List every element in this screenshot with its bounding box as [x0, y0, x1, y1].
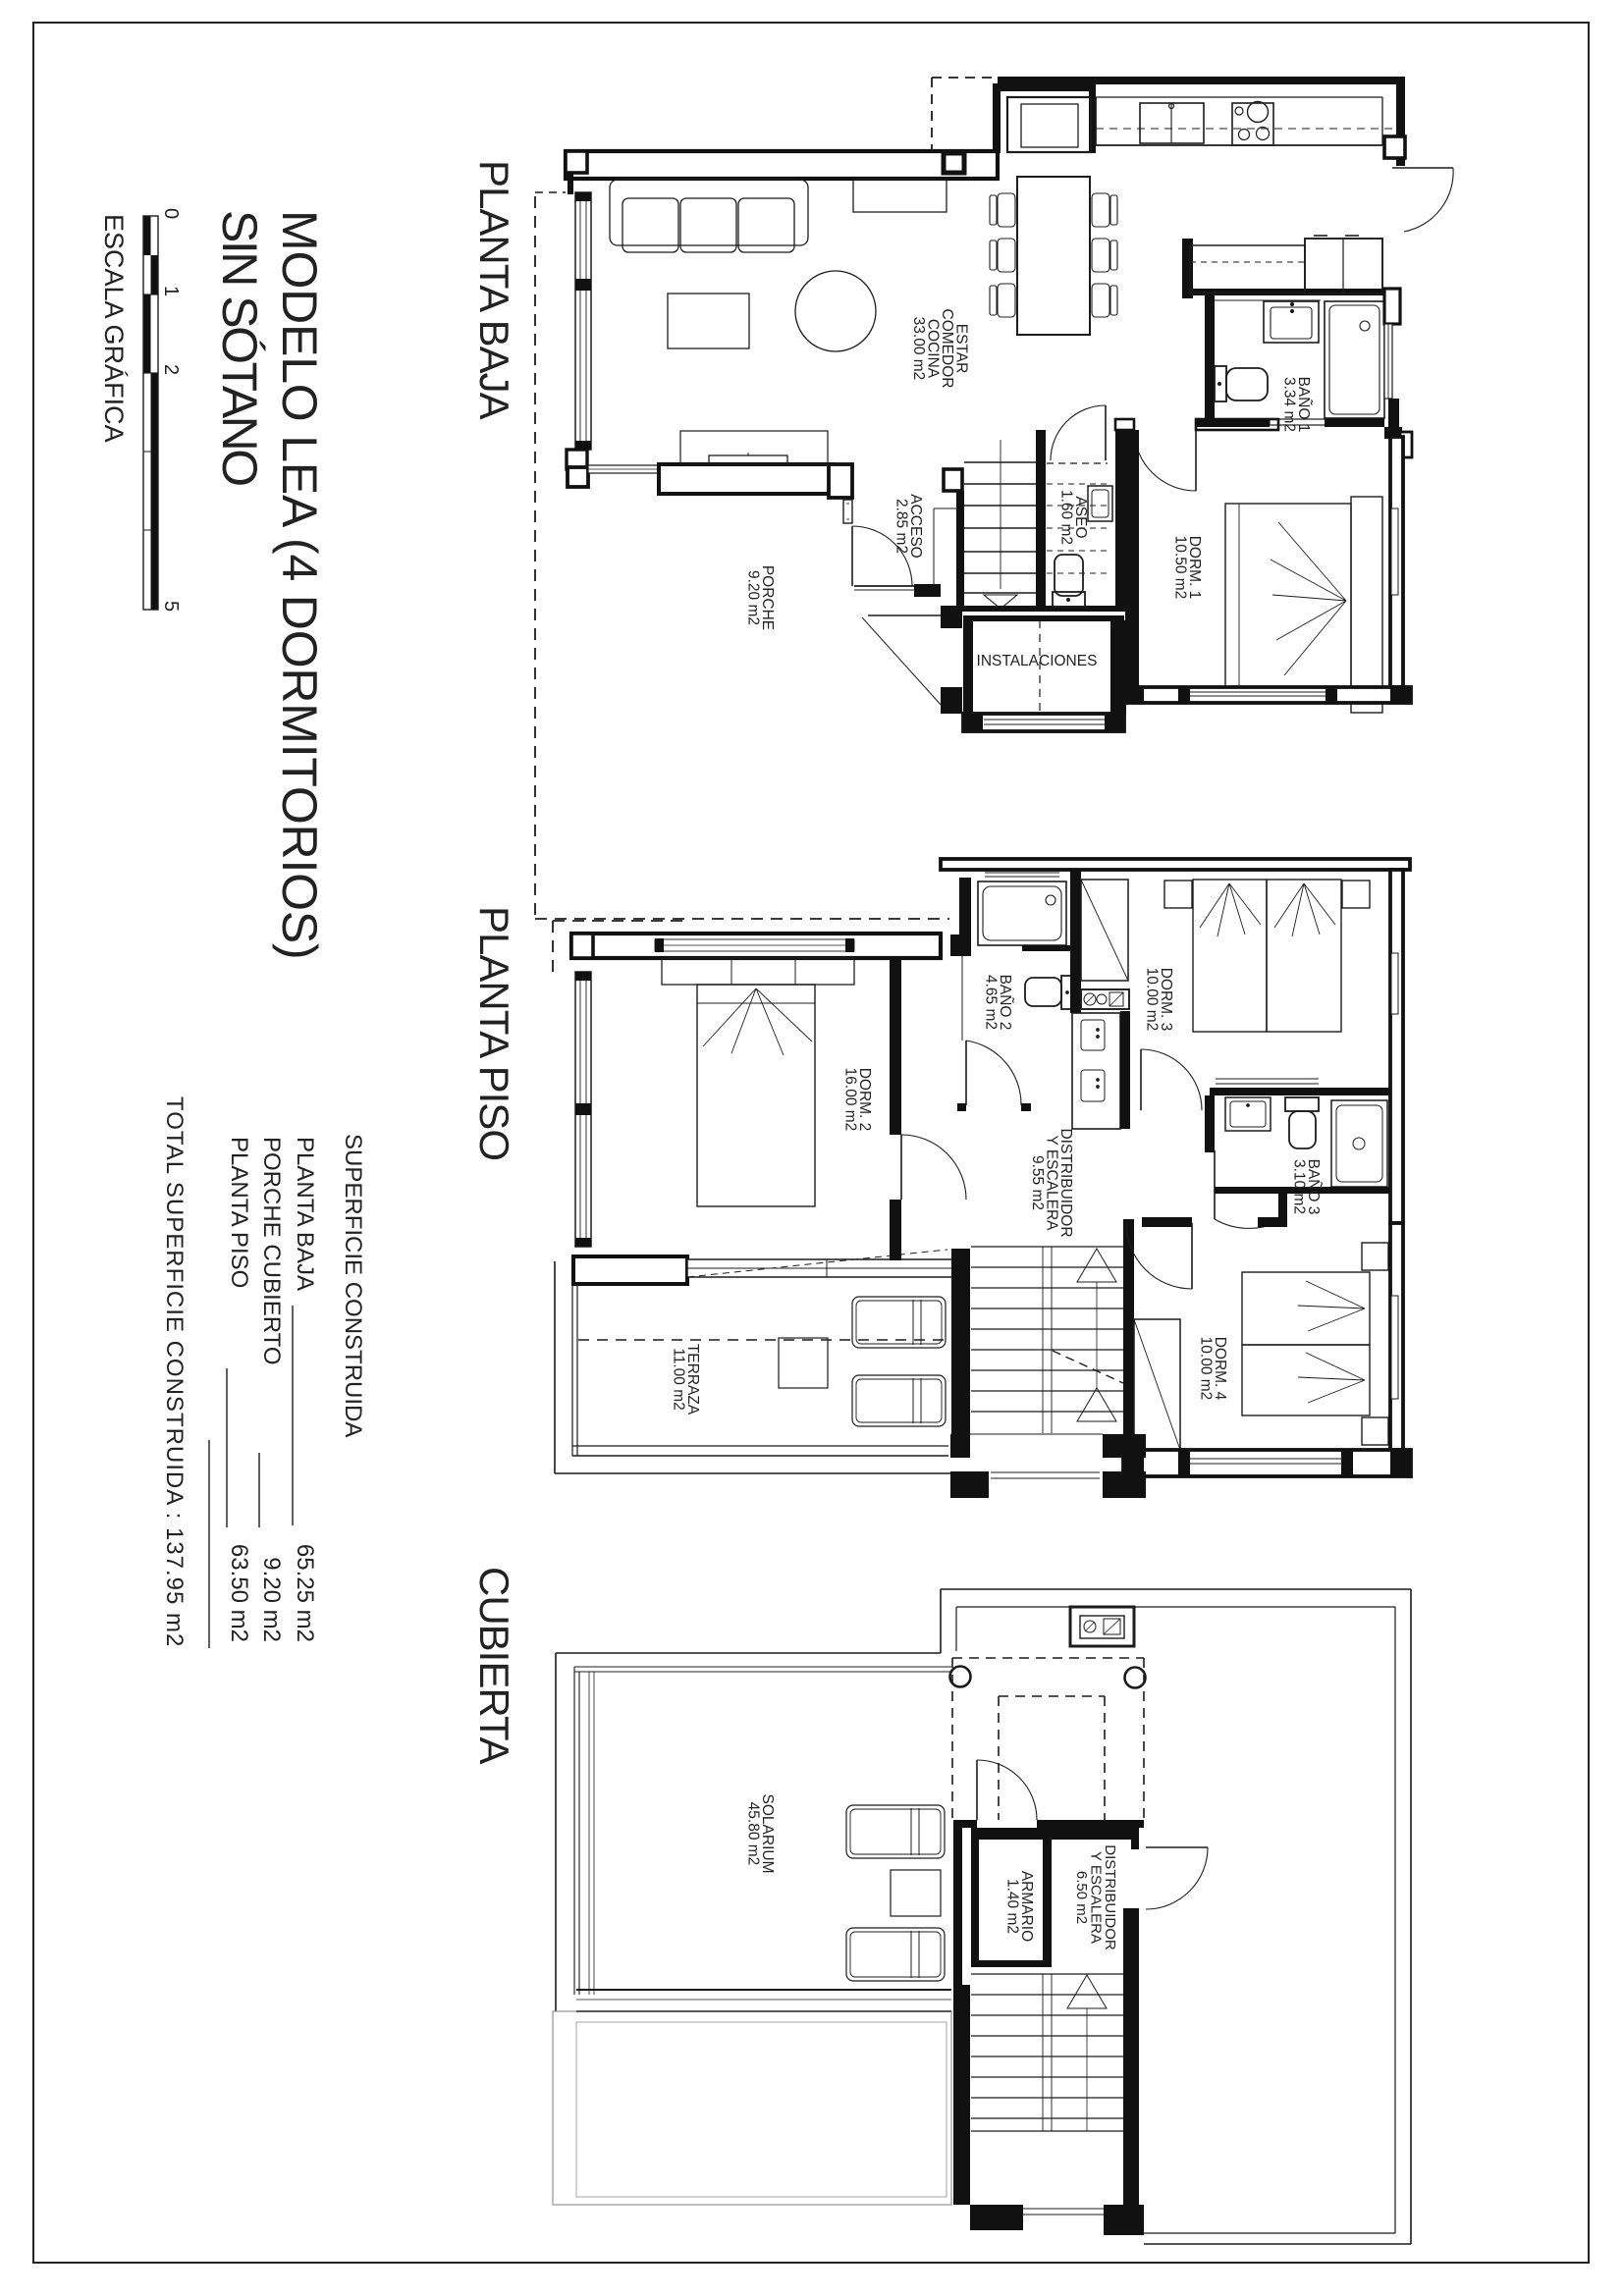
svg-text:9.20 m2: 9.20 m2	[258, 1557, 285, 1642]
svg-text:ESCALA GRÁFICA: ESCALA GRÁFICA	[99, 214, 129, 443]
svg-text:10.00 m2: 10.00 m2	[1198, 1337, 1215, 1401]
svg-text:3.34 m2: 3.34 m2	[1281, 377, 1298, 432]
svg-text:SIN SÓTANO: SIN SÓTANO	[212, 210, 267, 485]
svg-text:9.55 m2: 9.55 m2	[1029, 1155, 1046, 1210]
svg-text:10.00 m2: 10.00 m2	[1144, 968, 1161, 1032]
svg-text:PLANTA PISO: PLANTA PISO	[226, 1137, 252, 1288]
svg-text:33.00 m2: 33.00 m2	[910, 317, 927, 381]
svg-text:INSTALACIONES: INSTALACIONES	[977, 653, 1098, 669]
svg-text:1.40 m2: 1.40 m2	[1004, 1879, 1021, 1934]
svg-text:1: 1	[160, 286, 182, 296]
svg-text:65.25 m2: 65.25 m2	[292, 1544, 318, 1642]
svg-text:TOTAL SUPERFICIE CONSTRUIDA :: TOTAL SUPERFICIE CONSTRUIDA : 137.95 m2	[161, 1096, 188, 1647]
svg-text:45.80 m2: 45.80 m2	[745, 1802, 762, 1866]
svg-text:CUBIERTA: CUBIERTA	[471, 1567, 517, 1764]
svg-text:10.50 m2: 10.50 m2	[1172, 536, 1189, 600]
svg-text:0: 0	[160, 208, 182, 219]
svg-text:1.60 m2: 1.60 m2	[1058, 490, 1075, 545]
svg-text:4.65 m2: 4.65 m2	[983, 975, 1000, 1030]
svg-text:9.20 m2: 9.20 m2	[745, 570, 762, 625]
svg-text:2.85 m2: 2.85 m2	[893, 499, 910, 554]
svg-text:63.50 m2: 63.50 m2	[226, 1544, 252, 1642]
svg-text:PLANTA BAJA: PLANTA BAJA	[471, 160, 517, 420]
svg-text:3.10 m2: 3.10 m2	[1291, 1159, 1308, 1214]
svg-text:6.50 m2: 6.50 m2	[1073, 1871, 1090, 1924]
svg-text:5: 5	[160, 601, 182, 612]
svg-text:16.00 m2: 16.00 m2	[842, 1068, 859, 1132]
svg-text:MODELO LEA (4 DORMITORIOS): MODELO LEA (4 DORMITORIOS)	[272, 210, 327, 959]
svg-text:PORCHE CUBIERTO: PORCHE CUBIERTO	[258, 1137, 285, 1365]
svg-text:11.00 m2: 11.00 m2	[671, 1348, 687, 1410]
svg-text:SUPERFICIE CONSTRUIDA: SUPERFICIE CONSTRUIDA	[340, 1134, 366, 1437]
svg-text:PLANTA PISO: PLANTA PISO	[471, 906, 517, 1160]
svg-text:PLANTA BAJA: PLANTA BAJA	[292, 1137, 318, 1291]
svg-text:2: 2	[160, 364, 182, 375]
